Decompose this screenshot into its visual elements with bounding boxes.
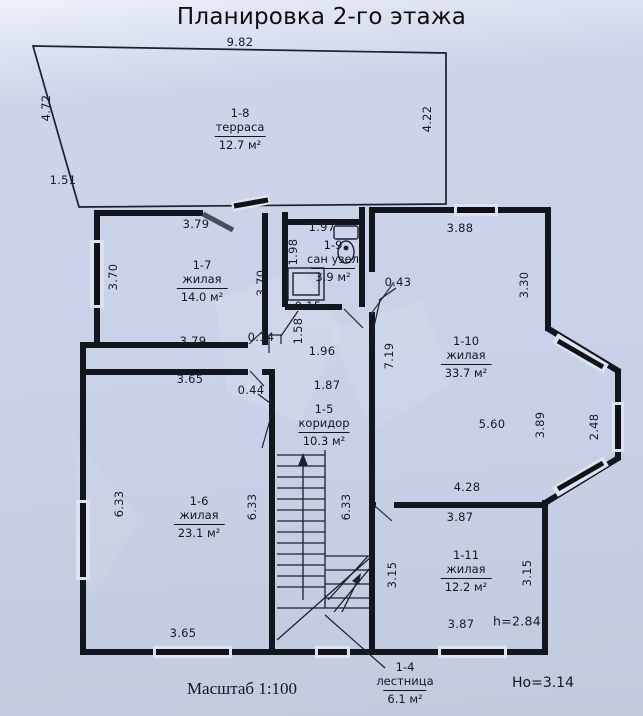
dimension-label: h=2.84 <box>493 614 541 629</box>
dimension-label: 6.33 <box>112 491 126 518</box>
dimension-label: 0.15 <box>295 299 322 313</box>
dimension-label: 3.87 <box>447 510 474 524</box>
page-title: Планировка 2-го этажа <box>177 4 466 30</box>
dimension-label: 3.87 <box>448 617 475 631</box>
dimension-label: 4.28 <box>454 480 481 494</box>
dimension-label: 0.14 <box>248 330 275 344</box>
dimension-label: 3.70 <box>254 270 268 297</box>
dimension-label: 4.72 <box>39 95 53 122</box>
floorplan-drawing <box>0 0 643 716</box>
dimension-label: 1.87 <box>314 378 341 392</box>
dimension-label: 1.98 <box>286 239 300 266</box>
dimension-label: 3.79 <box>180 334 207 348</box>
dimension-label: 5.60 <box>479 417 506 431</box>
dimension-label: 7.19 <box>382 343 396 370</box>
dimension-label: 3.30 <box>517 272 531 299</box>
dimension-label: 2.48 <box>587 414 601 441</box>
room-label-1-7: 1-7жилая14.0 м² <box>177 258 228 306</box>
dimension-label: 3.65 <box>177 372 204 386</box>
dimension-label: 1.97 <box>309 220 336 234</box>
dimension-label: 9.82 <box>227 35 254 49</box>
dimension-label: 1.58 <box>291 318 305 345</box>
room-label-1-10: 1-10жилая33.7 м² <box>441 334 492 382</box>
dimension-label: 0.43 <box>385 275 412 289</box>
dimension-label: 1.96 <box>309 344 336 358</box>
plan-note: Масштаб 1:100 <box>187 679 297 699</box>
room-label-1-9: 1-9сан узел3.9 м² <box>307 238 359 286</box>
dimension-label: 3.15 <box>385 562 399 589</box>
room-label-1-4: 1-4лестница6.1 м² <box>376 660 433 708</box>
watermark <box>70 268 452 600</box>
room-label-1-5: 1-5коридор10.3 м² <box>298 402 349 450</box>
dimension-label: 3.89 <box>533 412 547 439</box>
room-label-1-8: 1-8терраса12.7 м² <box>215 106 266 154</box>
dimension-label: 3.15 <box>520 560 534 587</box>
dimension-label: 6.33 <box>339 494 353 521</box>
dimension-label: 3.88 <box>447 221 474 235</box>
dimension-label: 1.51 <box>50 173 77 187</box>
dimension-label: 4.22 <box>420 106 434 133</box>
room-label-1-11: 1-11жилая12.2 м² <box>441 548 492 596</box>
plan-note: Но=3.14 <box>512 675 574 691</box>
staircase <box>277 450 372 640</box>
dimension-label: 0.44 <box>238 383 265 397</box>
dimension-label: 3.65 <box>170 626 197 640</box>
dimension-label: 6.33 <box>245 494 259 521</box>
floorplan-photo: Планировка 2-го этажа 1-8терраса12.7 м²1… <box>0 0 643 716</box>
dimension-label: 3.79 <box>183 217 210 231</box>
dimension-label: 3.70 <box>106 264 120 291</box>
room-label-1-6: 1-6жилая23.1 м² <box>174 494 225 542</box>
